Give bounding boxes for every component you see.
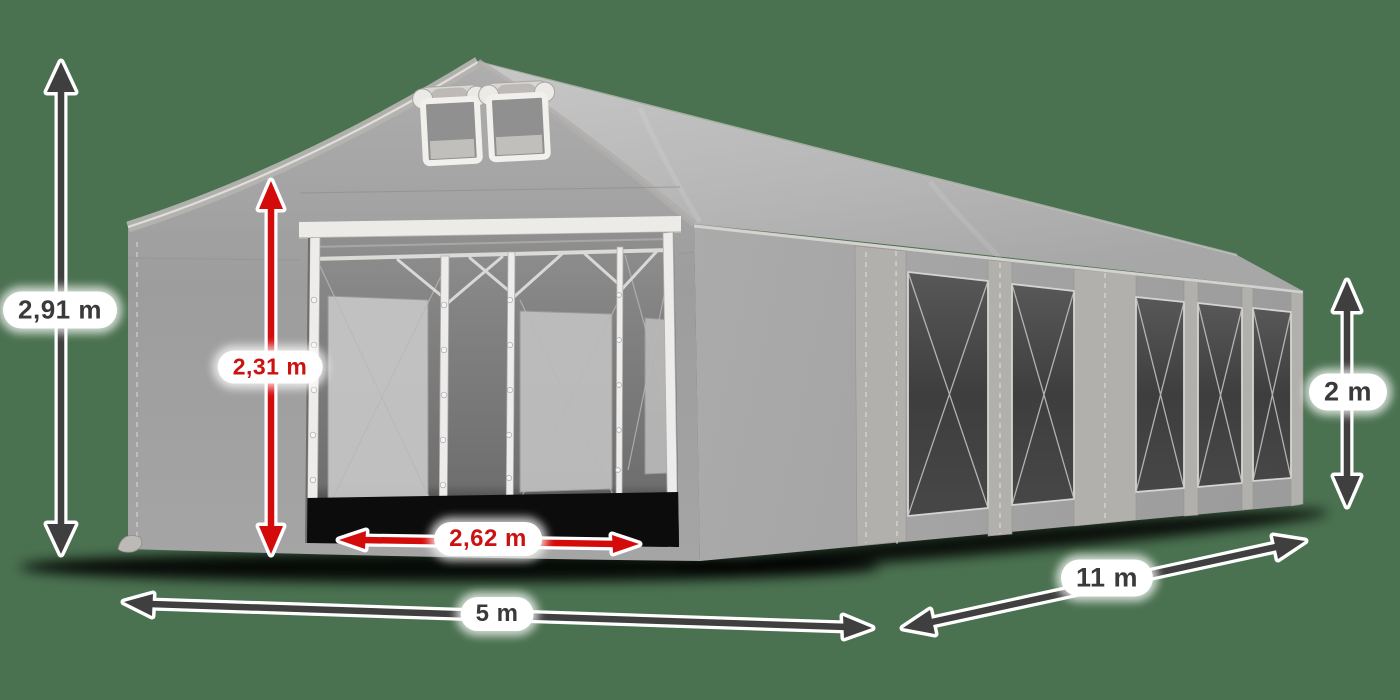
corner-panel-strip — [855, 246, 906, 546]
vent-window-right — [478, 80, 558, 160]
side-length-label: 11 m — [1061, 560, 1153, 597]
rolled-fabric-corner — [118, 536, 142, 553]
entrance-opening — [299, 216, 681, 547]
tent-illustration — [0, 0, 1400, 700]
side-wall-height-label: 2 m — [1309, 374, 1387, 411]
front-width-label: 5 m — [461, 597, 534, 631]
product-dimension-illustration: 2,91 m 2,31 m 2,62 m 5 m 11 m 2 m — [0, 0, 1400, 700]
entrance-width-label: 2,62 m — [434, 522, 542, 556]
entrance-height-label: 2,31 m — [218, 351, 323, 384]
total-height-label: 2,91 m — [3, 292, 117, 329]
